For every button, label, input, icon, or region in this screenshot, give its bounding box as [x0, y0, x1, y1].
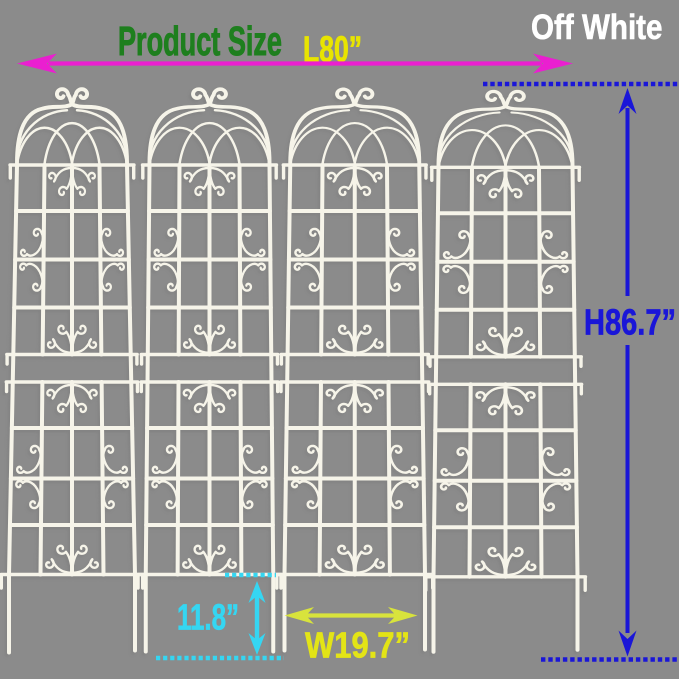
svg-text:11.8”: 11.8” — [177, 597, 239, 638]
svg-text:W19.7”: W19.7” — [305, 625, 410, 666]
svg-text:Off White: Off White — [531, 8, 663, 47]
svg-text:H86.7”: H86.7” — [584, 302, 676, 343]
svg-text:Product Size: Product Size — [118, 18, 282, 64]
